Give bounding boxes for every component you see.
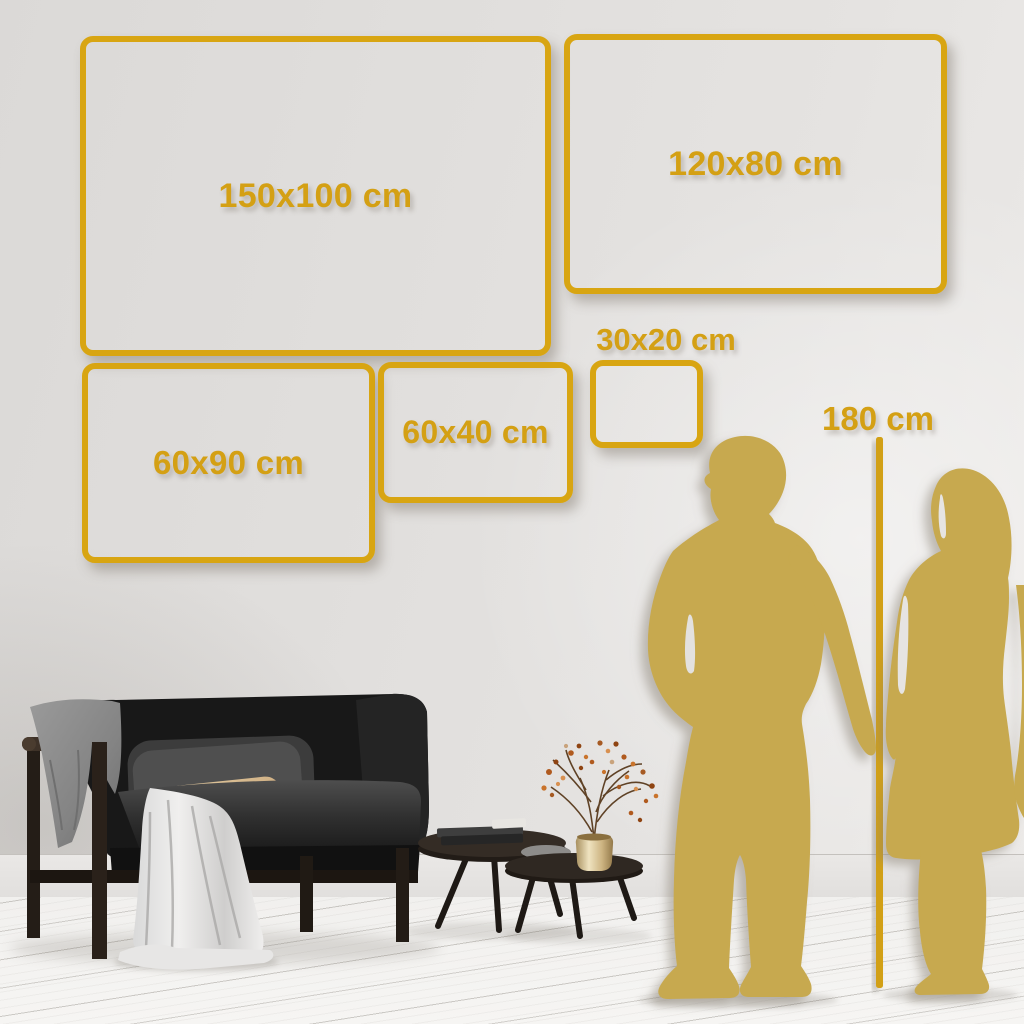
sofa <box>22 694 429 970</box>
nesting-coffee-tables <box>418 740 658 936</box>
woman-far-arm <box>1014 585 1024 818</box>
room-scene <box>0 0 1024 1024</box>
man-silhouette <box>648 436 876 999</box>
height-reference-line <box>876 437 883 988</box>
woman-silhouette <box>886 468 1024 995</box>
coffee-table-small <box>505 853 643 879</box>
dried-flowers <box>541 740 658 822</box>
white-booklet <box>492 818 526 829</box>
sofa-rail-knob <box>22 737 36 751</box>
couple-silhouette <box>648 436 1024 999</box>
sofa-middle-leg <box>300 856 313 932</box>
size-guide-mockup: 150x100 cm 120x80 cm 60x90 cm 60x40 cm 3… <box>0 0 1024 1024</box>
brass-vase-rim <box>577 834 611 841</box>
sofa-front-right-leg <box>396 848 409 942</box>
woman-legs <box>915 850 990 995</box>
sofa-front-left-leg <box>92 742 107 959</box>
sofa-rear-post <box>27 745 40 938</box>
